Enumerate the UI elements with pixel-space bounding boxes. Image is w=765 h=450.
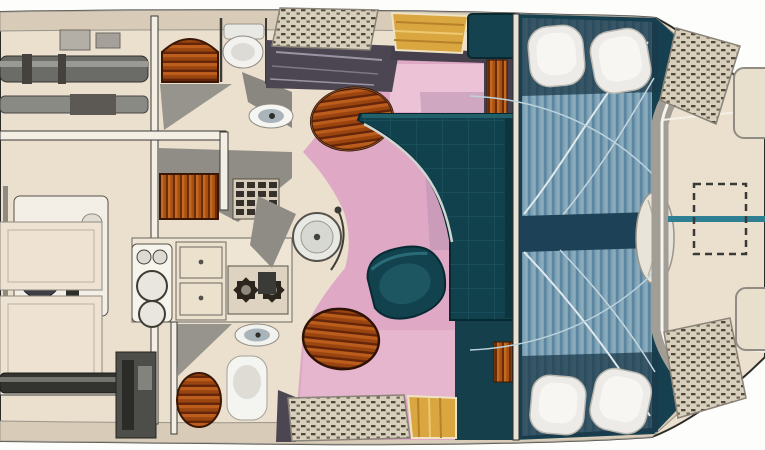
head-wall [171, 322, 177, 434]
cabinet-small [258, 272, 276, 294]
toilet-bottom [227, 356, 267, 420]
deck-centerline [668, 216, 765, 222]
engine-room-wall-top [0, 131, 226, 140]
floorplan-canvas [0, 0, 765, 450]
washbasin-top [249, 104, 293, 128]
deck-gear-block [96, 33, 120, 48]
cabin-bulkhead [513, 14, 519, 440]
storage-bench [0, 296, 102, 382]
yacht-floorplan [0, 0, 765, 450]
starboard-berth [522, 248, 658, 438]
washbasin-bottom [235, 324, 279, 346]
cabin-walkway [520, 212, 652, 254]
companionway-steps-top [392, 13, 468, 53]
arched-wardrobe [162, 39, 218, 82]
toilet-top [223, 24, 264, 68]
galley-cabinet [176, 242, 226, 320]
cabinet-teal-top [468, 14, 518, 58]
deck-hatch-top [734, 68, 765, 138]
cane-locker-bottom [288, 395, 410, 441]
companionway-steps-bottom [408, 396, 456, 438]
pillow [528, 374, 587, 436]
storage-bench [0, 222, 102, 290]
louver-cabinet [160, 174, 218, 219]
deck-hatch-bottom [736, 288, 765, 350]
stove-burner [233, 277, 258, 302]
pillow [526, 24, 586, 89]
port-berth [522, 18, 658, 218]
vanity-wall [220, 132, 228, 210]
deck-gear-block [60, 30, 90, 50]
hanging-locker-top [487, 60, 507, 114]
wardrobe-bottom [177, 373, 221, 427]
galley-sink-unit [132, 244, 172, 327]
cane-locker-top [272, 8, 378, 50]
